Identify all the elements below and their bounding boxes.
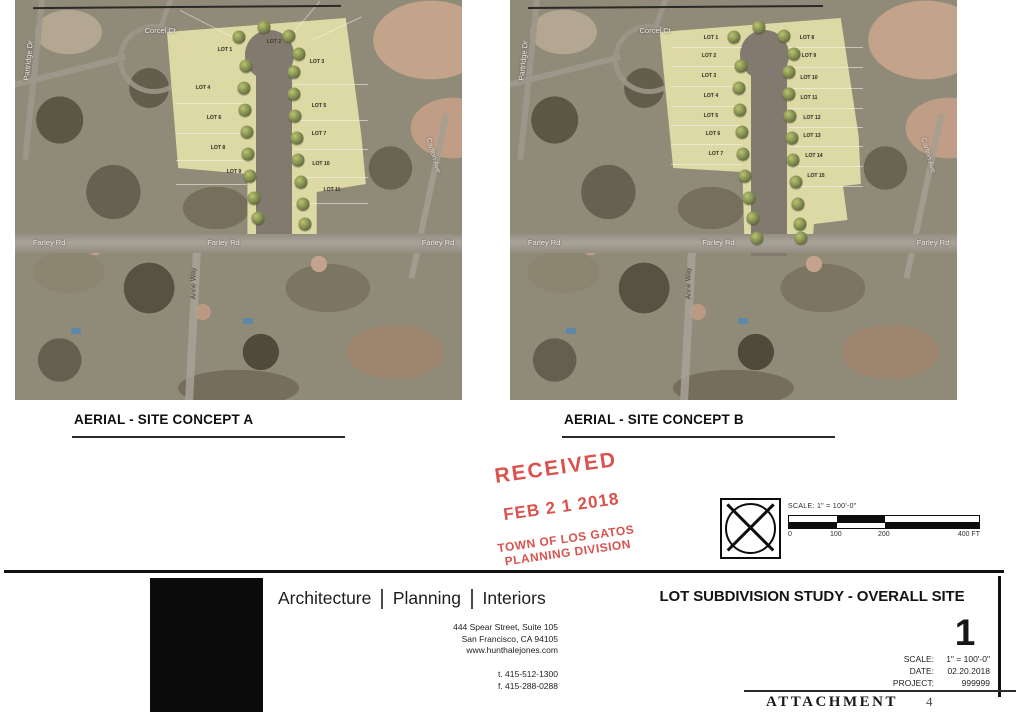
lot-line xyxy=(671,66,743,67)
street-label-farley-rd: Farley Rd xyxy=(207,238,240,247)
sheet-number: 1 xyxy=(940,612,990,654)
lot-label: LOT 6 xyxy=(207,115,221,120)
scale-tick: 0 xyxy=(788,531,792,538)
scale-midline xyxy=(789,522,979,523)
lot-line xyxy=(294,149,368,150)
lot-label: LOT 4 xyxy=(704,93,718,98)
lot-label: LOT 3 xyxy=(309,59,323,64)
tree-icon xyxy=(239,104,252,117)
lot-label: LOT 7 xyxy=(708,151,722,156)
lot-label: LOT 12 xyxy=(803,115,820,120)
meta-scale-row: SCALE: 1" = 100'-0" xyxy=(840,653,990,665)
tree-icon xyxy=(290,132,303,145)
tree-icon xyxy=(739,170,752,183)
tree-icon xyxy=(237,82,250,95)
lot-label: LOT 11 xyxy=(324,187,341,192)
swimming-pool xyxy=(738,318,748,324)
meta-label: SCALE: xyxy=(904,653,934,665)
tree-icon xyxy=(791,198,804,211)
swimming-pool xyxy=(566,328,576,334)
sheet-title: LOT SUBDIVISION STUDY - OVERALL SITE xyxy=(632,588,992,605)
tree-icon xyxy=(728,30,741,43)
lot-label: LOT 5 xyxy=(704,113,718,118)
scale-label: SCALE: 1" = 100'-0" xyxy=(788,503,980,510)
scale-tick: 100 xyxy=(830,531,842,538)
caption-underline xyxy=(72,436,345,438)
lot-line xyxy=(671,164,743,165)
tree-icon xyxy=(258,21,271,34)
tree-icon xyxy=(252,212,265,225)
firm-phones: t. 415-512-1300 f. 415-288-0288 xyxy=(380,669,558,692)
meta-project-row: PROJECT: 999999 xyxy=(840,677,990,689)
lot-line xyxy=(789,67,863,68)
firm-word-interiors: Interiors xyxy=(483,588,546,609)
meta-value: 1" = 100'-0" xyxy=(934,653,990,665)
tree-icon xyxy=(753,21,766,34)
tree-icon xyxy=(239,60,252,73)
street-label-anne-way: Anne Way xyxy=(191,267,198,299)
attachment-number: 4 xyxy=(926,694,933,710)
cul-de-sac-road xyxy=(751,48,787,256)
lot-label: LOT 5 xyxy=(312,103,326,108)
street-label-farley-rd: Farley Rd xyxy=(917,238,950,247)
meta-label: PROJECT: xyxy=(893,677,934,689)
tree-icon xyxy=(240,126,253,139)
swimming-pool xyxy=(243,318,253,324)
tree-icon xyxy=(296,198,309,211)
swimming-pool xyxy=(71,328,81,334)
lot-label: LOT 10 xyxy=(801,75,818,80)
tree-icon xyxy=(233,30,246,43)
lot-line xyxy=(789,146,863,147)
lot-line xyxy=(789,47,863,48)
meta-value: 02.20.2018 xyxy=(934,665,990,677)
attachment-label: ATTACHMENT xyxy=(766,694,898,711)
lot-label: LOT 13 xyxy=(803,133,820,138)
street-label-corcel-ct: Corcel Ct xyxy=(145,26,176,35)
tree-icon xyxy=(742,192,755,205)
tree-icon xyxy=(747,212,760,225)
firm-logo xyxy=(150,578,263,712)
tree-icon xyxy=(778,30,791,43)
address-line: San Francisco, CA 94105 xyxy=(380,634,558,646)
firm-address: 444 Spear Street, Suite 105 San Francisc… xyxy=(380,622,558,657)
scale-tick: 200 xyxy=(878,531,890,538)
lot-label: LOT 10 xyxy=(313,161,330,166)
tree-icon xyxy=(782,66,795,79)
street-label-farley-rd: Farley Rd xyxy=(702,238,735,247)
lot-line xyxy=(789,166,863,167)
tree-icon xyxy=(247,192,260,205)
caption-concept-a: AERIAL - SITE CONCEPT A xyxy=(74,412,253,427)
tree-icon xyxy=(734,60,747,73)
tree-icon xyxy=(283,30,296,43)
scanned-plan-sheet: Corcel Ct Partridge Dr Farley Rd Farley … xyxy=(0,0,1024,719)
street-label-farley-rd: Farley Rd xyxy=(33,238,66,247)
lot-line xyxy=(671,47,743,48)
lot-line xyxy=(671,144,743,145)
tree-icon xyxy=(736,148,749,161)
tree-icon xyxy=(783,88,796,101)
tree-icon xyxy=(244,170,257,183)
firm-word-architecture: Architecture xyxy=(278,588,371,609)
lot-line xyxy=(176,184,248,185)
meta-value: 999999 xyxy=(934,677,990,689)
scale-ticks: 0 100 200 400 FT xyxy=(788,531,980,541)
tree-icon xyxy=(294,176,307,189)
tree-icon xyxy=(241,148,254,161)
firm-website: www.hunthalejones.com xyxy=(380,645,558,657)
tree-icon xyxy=(734,104,747,117)
firm-name-row: Architecture Planning Interiors xyxy=(278,588,546,609)
lot-label: LOT 9 xyxy=(227,169,241,174)
scale-bar xyxy=(788,515,980,529)
tree-icon xyxy=(293,47,306,60)
firm-separator xyxy=(381,589,383,609)
lot-label: LOT 7 xyxy=(312,131,326,136)
tree-icon xyxy=(750,232,763,245)
lot-line xyxy=(789,127,863,128)
lot-line xyxy=(671,106,743,107)
tree-icon xyxy=(735,126,748,139)
lot-label: LOT 9 xyxy=(802,53,816,58)
tree-icon xyxy=(732,82,745,95)
fax-line: f. 415-288-0288 xyxy=(380,681,558,693)
tree-icon xyxy=(795,232,808,245)
caption-concept-b: AERIAL - SITE CONCEPT B xyxy=(564,412,744,427)
lot-line xyxy=(176,103,248,104)
lot-label: LOT 3 xyxy=(702,73,716,78)
sheet-meta: SCALE: 1" = 100'-0" DATE: 02.20.2018 PRO… xyxy=(840,653,990,689)
lot-line xyxy=(294,84,368,85)
lot-line xyxy=(789,108,863,109)
lot-label: LOT 11 xyxy=(801,95,818,100)
street-label-farley-rd: Farley Rd xyxy=(528,238,561,247)
firm-separator xyxy=(471,589,473,609)
subdivision-overlay xyxy=(15,0,462,400)
tree-icon xyxy=(288,110,301,123)
attachment-label-row: ATTACHMENT 4 xyxy=(766,694,932,711)
tree-icon xyxy=(789,176,802,189)
title-block-top-border xyxy=(4,570,1004,573)
meta-date-row: DATE: 02.20.2018 xyxy=(840,665,990,677)
tree-icon xyxy=(292,154,305,167)
tree-icon xyxy=(794,218,807,231)
subdivision-overlay xyxy=(510,0,957,400)
caption-underline xyxy=(562,436,835,438)
lot-label: LOT 15 xyxy=(808,173,825,178)
lot-label: LOT 1 xyxy=(218,47,232,52)
lot-label: LOT 8 xyxy=(800,35,814,40)
aerial-photo-concept-b: Corcel Ct Partridge Dr Farley Rd Farley … xyxy=(510,0,957,400)
tree-icon xyxy=(788,47,801,60)
lot-label: LOT 2 xyxy=(702,53,716,58)
scale-tick: 400 FT xyxy=(958,531,980,538)
tree-icon xyxy=(299,218,312,231)
aerial-photo-concept-a: Corcel Ct Partridge Dr Farley Rd Farley … xyxy=(15,0,462,400)
title-block-right-border xyxy=(998,576,1001,697)
lot-label: LOT 8 xyxy=(211,145,225,150)
tree-icon xyxy=(785,132,798,145)
tree-icon xyxy=(783,110,796,123)
tree-icon xyxy=(288,88,301,101)
street-label-anne-way: Anne Way xyxy=(686,267,693,299)
attachment-divider-line xyxy=(744,690,1016,692)
tree-icon xyxy=(287,66,300,79)
photo-top-border xyxy=(528,5,823,9)
lot-line xyxy=(671,125,743,126)
phone-line: t. 415-512-1300 xyxy=(380,669,558,681)
meta-label: DATE: xyxy=(910,665,934,677)
lot-label: LOT 1 xyxy=(704,35,718,40)
photo-top-border xyxy=(33,5,341,9)
lot-line xyxy=(789,88,863,89)
street-label-farley-rd: Farley Rd xyxy=(422,238,455,247)
graphic-scale: SCALE: 1" = 100'-0" 0 100 200 400 FT xyxy=(788,503,980,541)
lot-line xyxy=(294,120,368,121)
lot-line xyxy=(176,160,248,161)
lot-label: LOT 6 xyxy=(706,131,720,136)
north-arrow-icon xyxy=(720,498,781,559)
cul-de-sac-road xyxy=(256,48,292,240)
lot-label: LOT 2 xyxy=(267,39,281,44)
tree-icon xyxy=(787,154,800,167)
street-label-corcel-ct: Corcel Ct xyxy=(640,26,671,35)
lot-label: LOT 14 xyxy=(805,153,822,158)
firm-word-planning: Planning xyxy=(393,588,461,609)
lot-line xyxy=(176,133,248,134)
address-line: 444 Spear Street, Suite 105 xyxy=(380,622,558,634)
lot-label: LOT 4 xyxy=(196,85,210,90)
